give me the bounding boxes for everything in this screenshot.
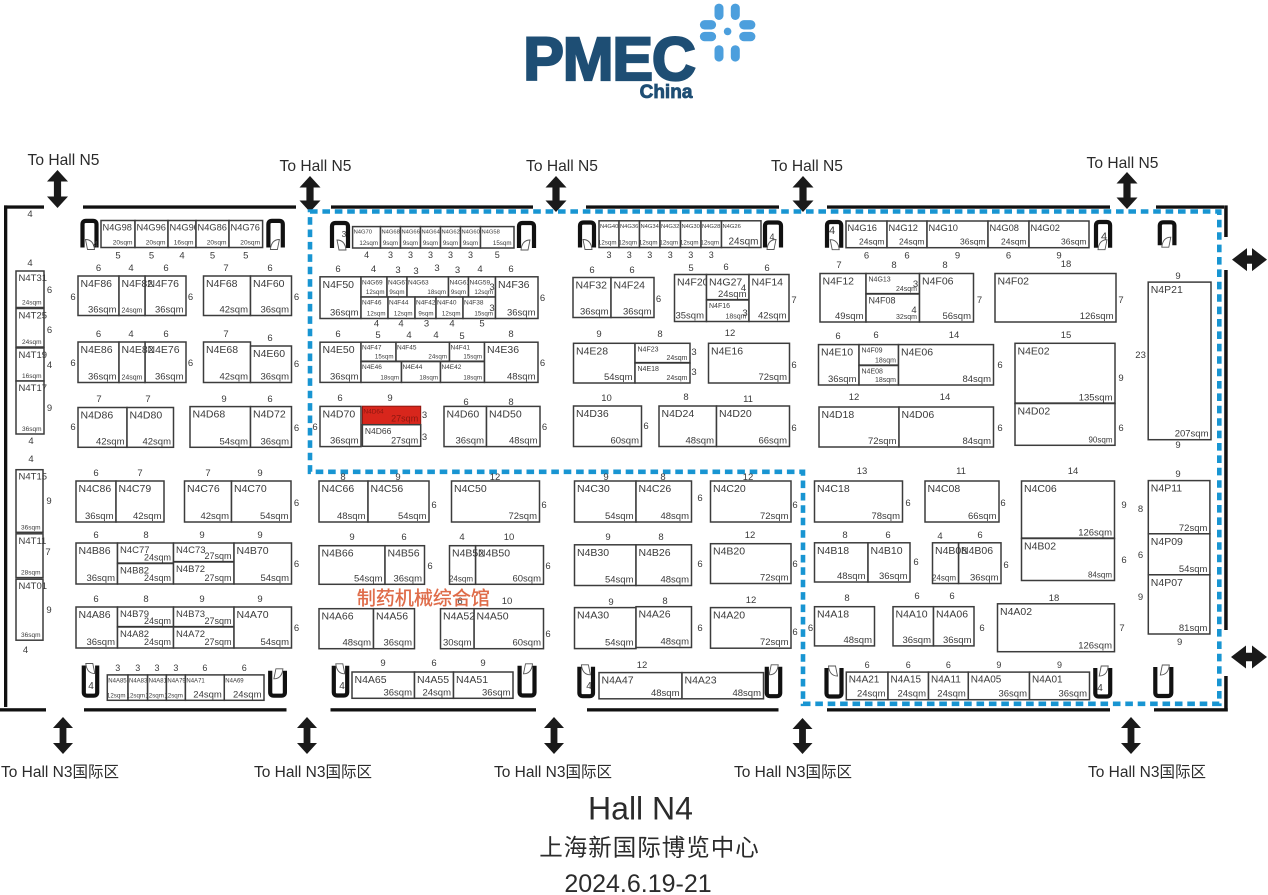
svg-text:54sqm: 54sqm [605, 511, 634, 522]
svg-text:N4F40: N4F40 [437, 300, 457, 307]
svg-text:42sqm: 42sqm [200, 511, 229, 522]
svg-text:4: 4 [28, 436, 33, 447]
svg-text:9: 9 [47, 403, 52, 414]
svg-text:N4F41: N4F41 [451, 345, 471, 352]
svg-text:3: 3 [154, 663, 159, 673]
svg-text:27sqm: 27sqm [391, 414, 418, 424]
svg-text:18sqm: 18sqm [463, 374, 482, 381]
svg-text:14: 14 [949, 330, 960, 341]
svg-text:48sqm: 48sqm [342, 638, 371, 649]
svg-text:5: 5 [375, 330, 380, 341]
svg-text:To Hall N5: To Hall N5 [280, 158, 352, 175]
svg-text:126sqm: 126sqm [1078, 528, 1112, 539]
svg-text:N4E18: N4E18 [638, 366, 660, 373]
svg-text:N4B72: N4B72 [176, 564, 205, 575]
svg-text:N4D68: N4D68 [193, 409, 226, 421]
svg-text:N4A20: N4A20 [713, 610, 745, 622]
svg-text:N4E36: N4E36 [487, 344, 519, 356]
svg-text:81sqm: 81sqm [1179, 623, 1208, 634]
svg-text:N4G96: N4G96 [137, 222, 166, 232]
svg-text:48sqm: 48sqm [685, 436, 714, 447]
svg-text:N4F47: N4F47 [362, 345, 382, 352]
svg-text:36sqm: 36sqm [85, 511, 114, 522]
svg-text:N4E06: N4E06 [901, 347, 933, 359]
svg-text:9sqm: 9sqm [423, 240, 438, 247]
svg-text:11: 11 [743, 394, 753, 405]
svg-text:9sqm: 9sqm [451, 289, 466, 296]
svg-text:N4G26: N4G26 [723, 224, 741, 230]
svg-text:N4G66: N4G66 [402, 230, 420, 236]
svg-text:8: 8 [340, 472, 345, 483]
svg-text:N4F45: N4F45 [397, 345, 417, 352]
svg-text:36sqm: 36sqm [86, 573, 115, 584]
svg-text:6: 6 [294, 423, 299, 434]
svg-text:N4G67: N4G67 [388, 279, 409, 286]
svg-text:36sqm: 36sqm [22, 426, 42, 433]
svg-text:8: 8 [658, 532, 663, 543]
svg-text:3: 3 [422, 410, 427, 421]
svg-text:N4G58: N4G58 [482, 230, 500, 236]
svg-text:N4G08: N4G08 [990, 223, 1019, 233]
svg-text:6: 6 [267, 333, 272, 344]
svg-text:N4E60: N4E60 [253, 348, 285, 360]
svg-text:N4G63: N4G63 [408, 279, 429, 286]
svg-text:6: 6 [401, 532, 406, 543]
svg-text:48sqm: 48sqm [732, 688, 761, 699]
svg-text:N4B70: N4B70 [237, 545, 269, 557]
svg-text:12sqm: 12sqm [659, 240, 678, 247]
svg-text:6: 6 [949, 591, 954, 602]
svg-text:14: 14 [1068, 466, 1079, 477]
svg-text:N4F86: N4F86 [81, 278, 113, 290]
svg-text:36sqm: 36sqm [1061, 237, 1087, 247]
svg-text:12: 12 [637, 660, 648, 671]
svg-text:N4D06: N4D06 [902, 409, 935, 421]
svg-text:6: 6 [47, 325, 52, 336]
svg-text:6: 6 [791, 423, 796, 434]
svg-text:N4C26: N4C26 [639, 483, 672, 495]
svg-text:N4B18: N4B18 [817, 545, 849, 557]
svg-text:72sqm: 72sqm [760, 511, 789, 522]
svg-text:4: 4 [741, 283, 746, 294]
svg-text:24sqm: 24sqm [449, 574, 473, 583]
svg-text:N4A72: N4A72 [176, 629, 205, 640]
svg-text:4: 4 [23, 645, 28, 656]
svg-text:9: 9 [608, 597, 613, 608]
svg-text:9: 9 [605, 532, 610, 543]
svg-text:54sqm: 54sqm [260, 573, 289, 584]
svg-text:N4F32: N4F32 [576, 280, 608, 292]
svg-text:6: 6 [540, 358, 545, 369]
svg-text:3: 3 [173, 663, 178, 673]
svg-text:N4D36: N4D36 [576, 408, 609, 420]
svg-text:36sqm: 36sqm [507, 308, 536, 319]
svg-text:6: 6 [723, 262, 728, 273]
svg-text:36sqm: 36sqm [260, 372, 289, 383]
svg-text:3: 3 [413, 266, 418, 277]
svg-text:9: 9 [1138, 592, 1143, 603]
svg-text:N4B26: N4B26 [639, 547, 671, 559]
svg-text:7: 7 [1119, 623, 1124, 634]
svg-text:N4C30: N4C30 [577, 483, 610, 495]
svg-text:6: 6 [294, 623, 299, 634]
svg-text:5: 5 [243, 251, 248, 262]
svg-text:N4B30: N4B30 [577, 547, 609, 559]
svg-text:N4A30: N4A30 [577, 610, 609, 622]
svg-text:9: 9 [596, 329, 601, 340]
svg-text:36sqm: 36sqm [155, 305, 184, 316]
svg-text:9: 9 [257, 594, 262, 605]
svg-text:N4F02: N4F02 [998, 276, 1030, 288]
svg-text:48sqm: 48sqm [843, 635, 872, 646]
svg-text:9: 9 [221, 394, 226, 405]
svg-text:4: 4 [398, 319, 403, 330]
svg-text:N4G40: N4G40 [600, 224, 618, 230]
svg-text:84sqm: 84sqm [962, 436, 991, 447]
svg-text:8: 8 [1138, 504, 1143, 515]
svg-text:N4E02: N4E02 [1018, 345, 1050, 357]
svg-text:20sqm: 20sqm [146, 240, 166, 247]
svg-text:6: 6 [697, 559, 702, 570]
svg-text:6: 6 [864, 251, 869, 262]
svg-text:N4F12: N4F12 [823, 276, 855, 288]
svg-text:6: 6 [294, 292, 299, 303]
svg-text:6: 6 [1006, 251, 1011, 262]
svg-text:N4D70: N4D70 [323, 408, 356, 420]
svg-text:36sqm: 36sqm [86, 637, 115, 648]
svg-text:6: 6 [865, 660, 870, 670]
svg-text:N4C79: N4C79 [119, 483, 152, 495]
svg-text:N4F08: N4F08 [869, 296, 896, 306]
svg-text:6: 6 [267, 394, 272, 405]
svg-text:N4E10: N4E10 [821, 347, 853, 359]
svg-text:6: 6 [792, 500, 797, 511]
svg-text:N4B56: N4B56 [388, 548, 420, 560]
svg-text:N4A18: N4A18 [817, 609, 849, 621]
svg-text:6: 6 [589, 265, 594, 276]
svg-text:12sqm: 12sqm [442, 311, 461, 318]
svg-text:N4A70: N4A70 [237, 609, 269, 621]
svg-text:48sqm: 48sqm [660, 575, 689, 586]
svg-text:N4G62: N4G62 [442, 230, 460, 236]
svg-text:48sqm: 48sqm [660, 637, 689, 648]
svg-text:3: 3 [448, 250, 453, 260]
svg-text:12: 12 [743, 472, 754, 483]
svg-text:N4F50: N4F50 [323, 279, 355, 291]
svg-text:N4E16: N4E16 [711, 345, 743, 357]
svg-text:6: 6 [764, 263, 769, 274]
svg-text:6: 6 [335, 264, 340, 275]
svg-text:24sqm: 24sqm [22, 300, 42, 307]
svg-text:N4B02: N4B02 [1024, 541, 1056, 553]
svg-text:4: 4 [406, 330, 411, 341]
svg-text:6: 6 [508, 264, 513, 275]
svg-text:4: 4 [128, 329, 133, 340]
svg-text:To Hall N5: To Hall N5 [1087, 155, 1159, 172]
svg-text:12sqm: 12sqm [700, 240, 719, 247]
svg-text:12sqm: 12sqm [639, 240, 658, 247]
svg-text:5: 5 [459, 331, 464, 342]
svg-text:N4F06: N4F06 [922, 276, 954, 288]
svg-text:N4B73: N4B73 [176, 609, 205, 620]
svg-text:12sqm: 12sqm [145, 692, 164, 699]
svg-text:6: 6 [1138, 550, 1143, 561]
svg-text:7: 7 [145, 394, 150, 405]
svg-text:24sqm: 24sqm [233, 689, 262, 700]
svg-text:5: 5 [210, 251, 215, 262]
svg-text:23: 23 [1135, 350, 1146, 361]
svg-text:N4G12: N4G12 [889, 223, 918, 233]
svg-text:9: 9 [1175, 469, 1180, 480]
svg-text:4: 4 [911, 305, 916, 316]
svg-text:42sqm: 42sqm [133, 511, 162, 522]
svg-text:12: 12 [746, 595, 757, 606]
svg-text:N4G60: N4G60 [462, 230, 480, 236]
svg-text:54sqm: 54sqm [260, 511, 289, 522]
svg-text:N4E50: N4E50 [323, 344, 355, 356]
svg-text:9: 9 [1121, 500, 1126, 511]
svg-text:48sqm: 48sqm [337, 511, 366, 522]
svg-text:N4C50: N4C50 [454, 483, 487, 495]
svg-text:56sqm: 56sqm [942, 311, 971, 322]
svg-text:N4A56: N4A56 [376, 611, 408, 623]
svg-text:N4A52: N4A52 [443, 611, 475, 623]
svg-text:N4A02: N4A02 [1000, 606, 1032, 618]
svg-text:N4G64: N4G64 [422, 230, 441, 236]
svg-text:12sqm: 12sqm [618, 240, 637, 247]
svg-text:To Hall N3国际区: To Hall N3国际区 [1088, 763, 1206, 781]
svg-text:N4A06: N4A06 [936, 609, 968, 621]
svg-text:4: 4 [28, 454, 33, 465]
svg-text:15: 15 [1061, 330, 1072, 341]
svg-text:6: 6 [337, 393, 342, 404]
svg-text:4: 4 [371, 264, 376, 275]
svg-text:7: 7 [205, 468, 210, 479]
svg-text:Hall N4: Hall N4 [588, 791, 693, 827]
svg-text:16sqm: 16sqm [22, 373, 42, 380]
svg-text:N4D02: N4D02 [1018, 406, 1051, 418]
svg-text:N4E46: N4E46 [362, 364, 382, 371]
svg-text:N4G61: N4G61 [450, 279, 471, 286]
svg-text:8: 8 [844, 593, 849, 604]
svg-text:48sqm: 48sqm [509, 436, 538, 447]
svg-text:3: 3 [115, 663, 120, 673]
svg-text:N4E68: N4E68 [206, 344, 238, 356]
svg-text:N4F14: N4F14 [752, 277, 784, 289]
svg-text:N4A05: N4A05 [971, 675, 1002, 686]
svg-text:N4G76: N4G76 [231, 222, 260, 232]
svg-text:N4F60: N4F60 [253, 278, 285, 290]
svg-text:To Hall N3国际区: To Hall N3国际区 [494, 763, 612, 781]
svg-text:6: 6 [643, 421, 648, 432]
svg-text:N4G90: N4G90 [170, 222, 199, 232]
svg-text:66sqm: 66sqm [968, 511, 997, 522]
svg-text:4: 4 [829, 225, 835, 237]
svg-text:6: 6 [96, 263, 101, 274]
svg-text:4: 4 [47, 360, 52, 371]
svg-text:84sqm: 84sqm [962, 374, 991, 385]
svg-text:60sqm: 60sqm [610, 436, 639, 447]
svg-text:54sqm: 54sqm [219, 436, 248, 447]
svg-text:9: 9 [1057, 660, 1062, 670]
svg-text:N4A86: N4A86 [79, 609, 111, 621]
svg-text:N4D72: N4D72 [253, 409, 286, 421]
svg-text:7: 7 [137, 468, 142, 479]
svg-text:24sqm: 24sqm [1001, 237, 1027, 247]
svg-text:3: 3 [395, 265, 400, 276]
svg-text:4: 4 [586, 681, 592, 692]
svg-text:36sqm: 36sqm [943, 635, 972, 646]
svg-text:36sqm: 36sqm [623, 307, 652, 318]
svg-text:6: 6 [93, 468, 98, 479]
svg-text:3: 3 [468, 250, 473, 260]
svg-text:3: 3 [489, 303, 494, 314]
svg-text:To Hall N5: To Hall N5 [28, 152, 100, 169]
svg-text:6: 6 [431, 658, 436, 669]
svg-text:36sqm: 36sqm [482, 687, 511, 698]
svg-text:N4G30: N4G30 [682, 224, 700, 230]
svg-text:42sqm: 42sqm [96, 436, 125, 447]
svg-text:6: 6 [545, 561, 550, 572]
svg-text:54sqm: 54sqm [605, 638, 634, 649]
svg-text:4: 4 [93, 240, 98, 250]
svg-text:24sqm: 24sqm [932, 574, 956, 583]
svg-text:4: 4 [27, 209, 32, 220]
svg-text:6: 6 [188, 358, 193, 369]
svg-text:48sqm: 48sqm [660, 511, 689, 522]
svg-text:6: 6 [808, 623, 813, 634]
svg-text:N4A21: N4A21 [849, 675, 880, 686]
svg-text:24sqm: 24sqm [144, 616, 171, 626]
svg-text:36sqm: 36sqm [330, 371, 359, 382]
svg-text:N4A51: N4A51 [456, 674, 488, 686]
svg-text:9: 9 [996, 660, 1001, 670]
svg-text:6: 6 [70, 422, 75, 433]
svg-text:6: 6 [202, 663, 207, 673]
svg-text:6: 6 [163, 329, 168, 340]
svg-text:6: 6 [294, 559, 299, 570]
svg-text:6: 6 [791, 360, 796, 371]
svg-text:To Hall N5: To Hall N5 [771, 158, 843, 175]
svg-text:N4C73: N4C73 [176, 545, 206, 556]
svg-text:7: 7 [223, 329, 228, 340]
svg-text:36sqm: 36sqm [330, 436, 359, 447]
svg-text:9: 9 [603, 472, 608, 483]
svg-text:16sqm: 16sqm [174, 240, 194, 247]
svg-text:4: 4 [477, 264, 482, 275]
svg-text:9: 9 [1118, 373, 1123, 384]
svg-text:8: 8 [662, 596, 667, 607]
svg-text:8: 8 [891, 260, 896, 271]
svg-text:4: 4 [459, 532, 464, 543]
svg-text:49sqm: 49sqm [835, 311, 864, 322]
svg-text:15sqm: 15sqm [463, 354, 482, 361]
svg-text:36sqm: 36sqm [960, 237, 986, 247]
svg-text:8: 8 [143, 594, 148, 605]
svg-text:4: 4 [179, 251, 184, 262]
svg-text:3: 3 [668, 250, 673, 260]
svg-text:N4C18: N4C18 [817, 483, 850, 495]
svg-text:12: 12 [849, 392, 860, 403]
svg-text:9: 9 [199, 530, 204, 541]
svg-text:24sqm: 24sqm [666, 355, 687, 362]
svg-text:N4G28: N4G28 [702, 224, 720, 230]
svg-text:54sqm: 54sqm [398, 511, 427, 522]
svg-text:To Hall N3国际区: To Hall N3国际区 [734, 763, 852, 781]
svg-text:7: 7 [1118, 295, 1123, 306]
svg-text:6: 6 [697, 493, 702, 504]
svg-text:N4A66: N4A66 [322, 611, 354, 623]
svg-text:54sqm: 54sqm [354, 573, 383, 584]
svg-text:42sqm: 42sqm [142, 436, 171, 447]
svg-text:N4G02: N4G02 [1031, 223, 1060, 233]
svg-text:6: 6 [905, 498, 910, 509]
svg-text:N4D24: N4D24 [662, 408, 695, 420]
svg-text:N4D20: N4D20 [719, 408, 752, 420]
svg-text:N4G59: N4G59 [470, 279, 491, 286]
svg-text:3: 3 [408, 250, 413, 260]
svg-text:36sqm: 36sqm [828, 374, 857, 385]
svg-text:5: 5 [688, 263, 693, 274]
svg-text:42sqm: 42sqm [219, 305, 248, 316]
svg-text:5: 5 [479, 319, 484, 330]
svg-text:36sqm: 36sqm [383, 687, 412, 698]
svg-text:N4T25: N4T25 [19, 311, 48, 322]
svg-text:6: 6 [914, 591, 919, 602]
svg-text:9: 9 [387, 393, 392, 404]
svg-text:N4F24: N4F24 [614, 280, 646, 292]
svg-text:18: 18 [1049, 593, 1060, 604]
svg-text:N4G70: N4G70 [354, 230, 372, 236]
svg-text:N4E08: N4E08 [862, 369, 884, 376]
svg-text:N4D18: N4D18 [822, 409, 855, 421]
svg-text:3: 3 [489, 282, 494, 293]
svg-text:5: 5 [149, 251, 154, 262]
svg-text:36sqm: 36sqm [970, 573, 999, 584]
svg-text:N4P21: N4P21 [1151, 284, 1183, 296]
svg-text:6: 6 [979, 623, 984, 634]
svg-text:4: 4 [1097, 683, 1103, 694]
svg-text:6: 6 [997, 423, 1002, 434]
svg-text:N4T19: N4T19 [19, 350, 48, 361]
svg-text:N4T31: N4T31 [19, 273, 48, 284]
svg-text:8: 8 [508, 397, 513, 408]
svg-text:4: 4 [364, 250, 369, 260]
svg-text:6: 6 [542, 422, 547, 433]
svg-text:N4F82: N4F82 [122, 278, 154, 290]
svg-text:4: 4 [374, 319, 379, 330]
svg-text:6: 6 [792, 627, 797, 638]
svg-text:9: 9 [1175, 440, 1180, 451]
svg-text:To Hall N3国际区: To Hall N3国际区 [254, 763, 372, 781]
svg-text:N4T11: N4T11 [19, 536, 47, 547]
svg-text:42sqm: 42sqm [219, 372, 248, 383]
svg-text:N4A01: N4A01 [1032, 675, 1063, 686]
svg-text:N4T01: N4T01 [19, 581, 48, 592]
svg-text:N4E86: N4E86 [81, 344, 113, 356]
svg-text:6: 6 [913, 557, 918, 568]
svg-text:36sqm: 36sqm [260, 436, 289, 447]
svg-text:18sqm: 18sqm [419, 374, 438, 381]
svg-text:N4D50: N4D50 [489, 408, 522, 420]
svg-text:6: 6 [835, 331, 840, 342]
svg-text:N4C08: N4C08 [928, 483, 961, 495]
svg-text:4: 4 [937, 531, 942, 542]
svg-text:6: 6 [70, 358, 75, 369]
svg-text:N4P11: N4P11 [1151, 483, 1182, 495]
svg-text:3: 3 [434, 263, 439, 274]
svg-text:3: 3 [691, 367, 696, 378]
